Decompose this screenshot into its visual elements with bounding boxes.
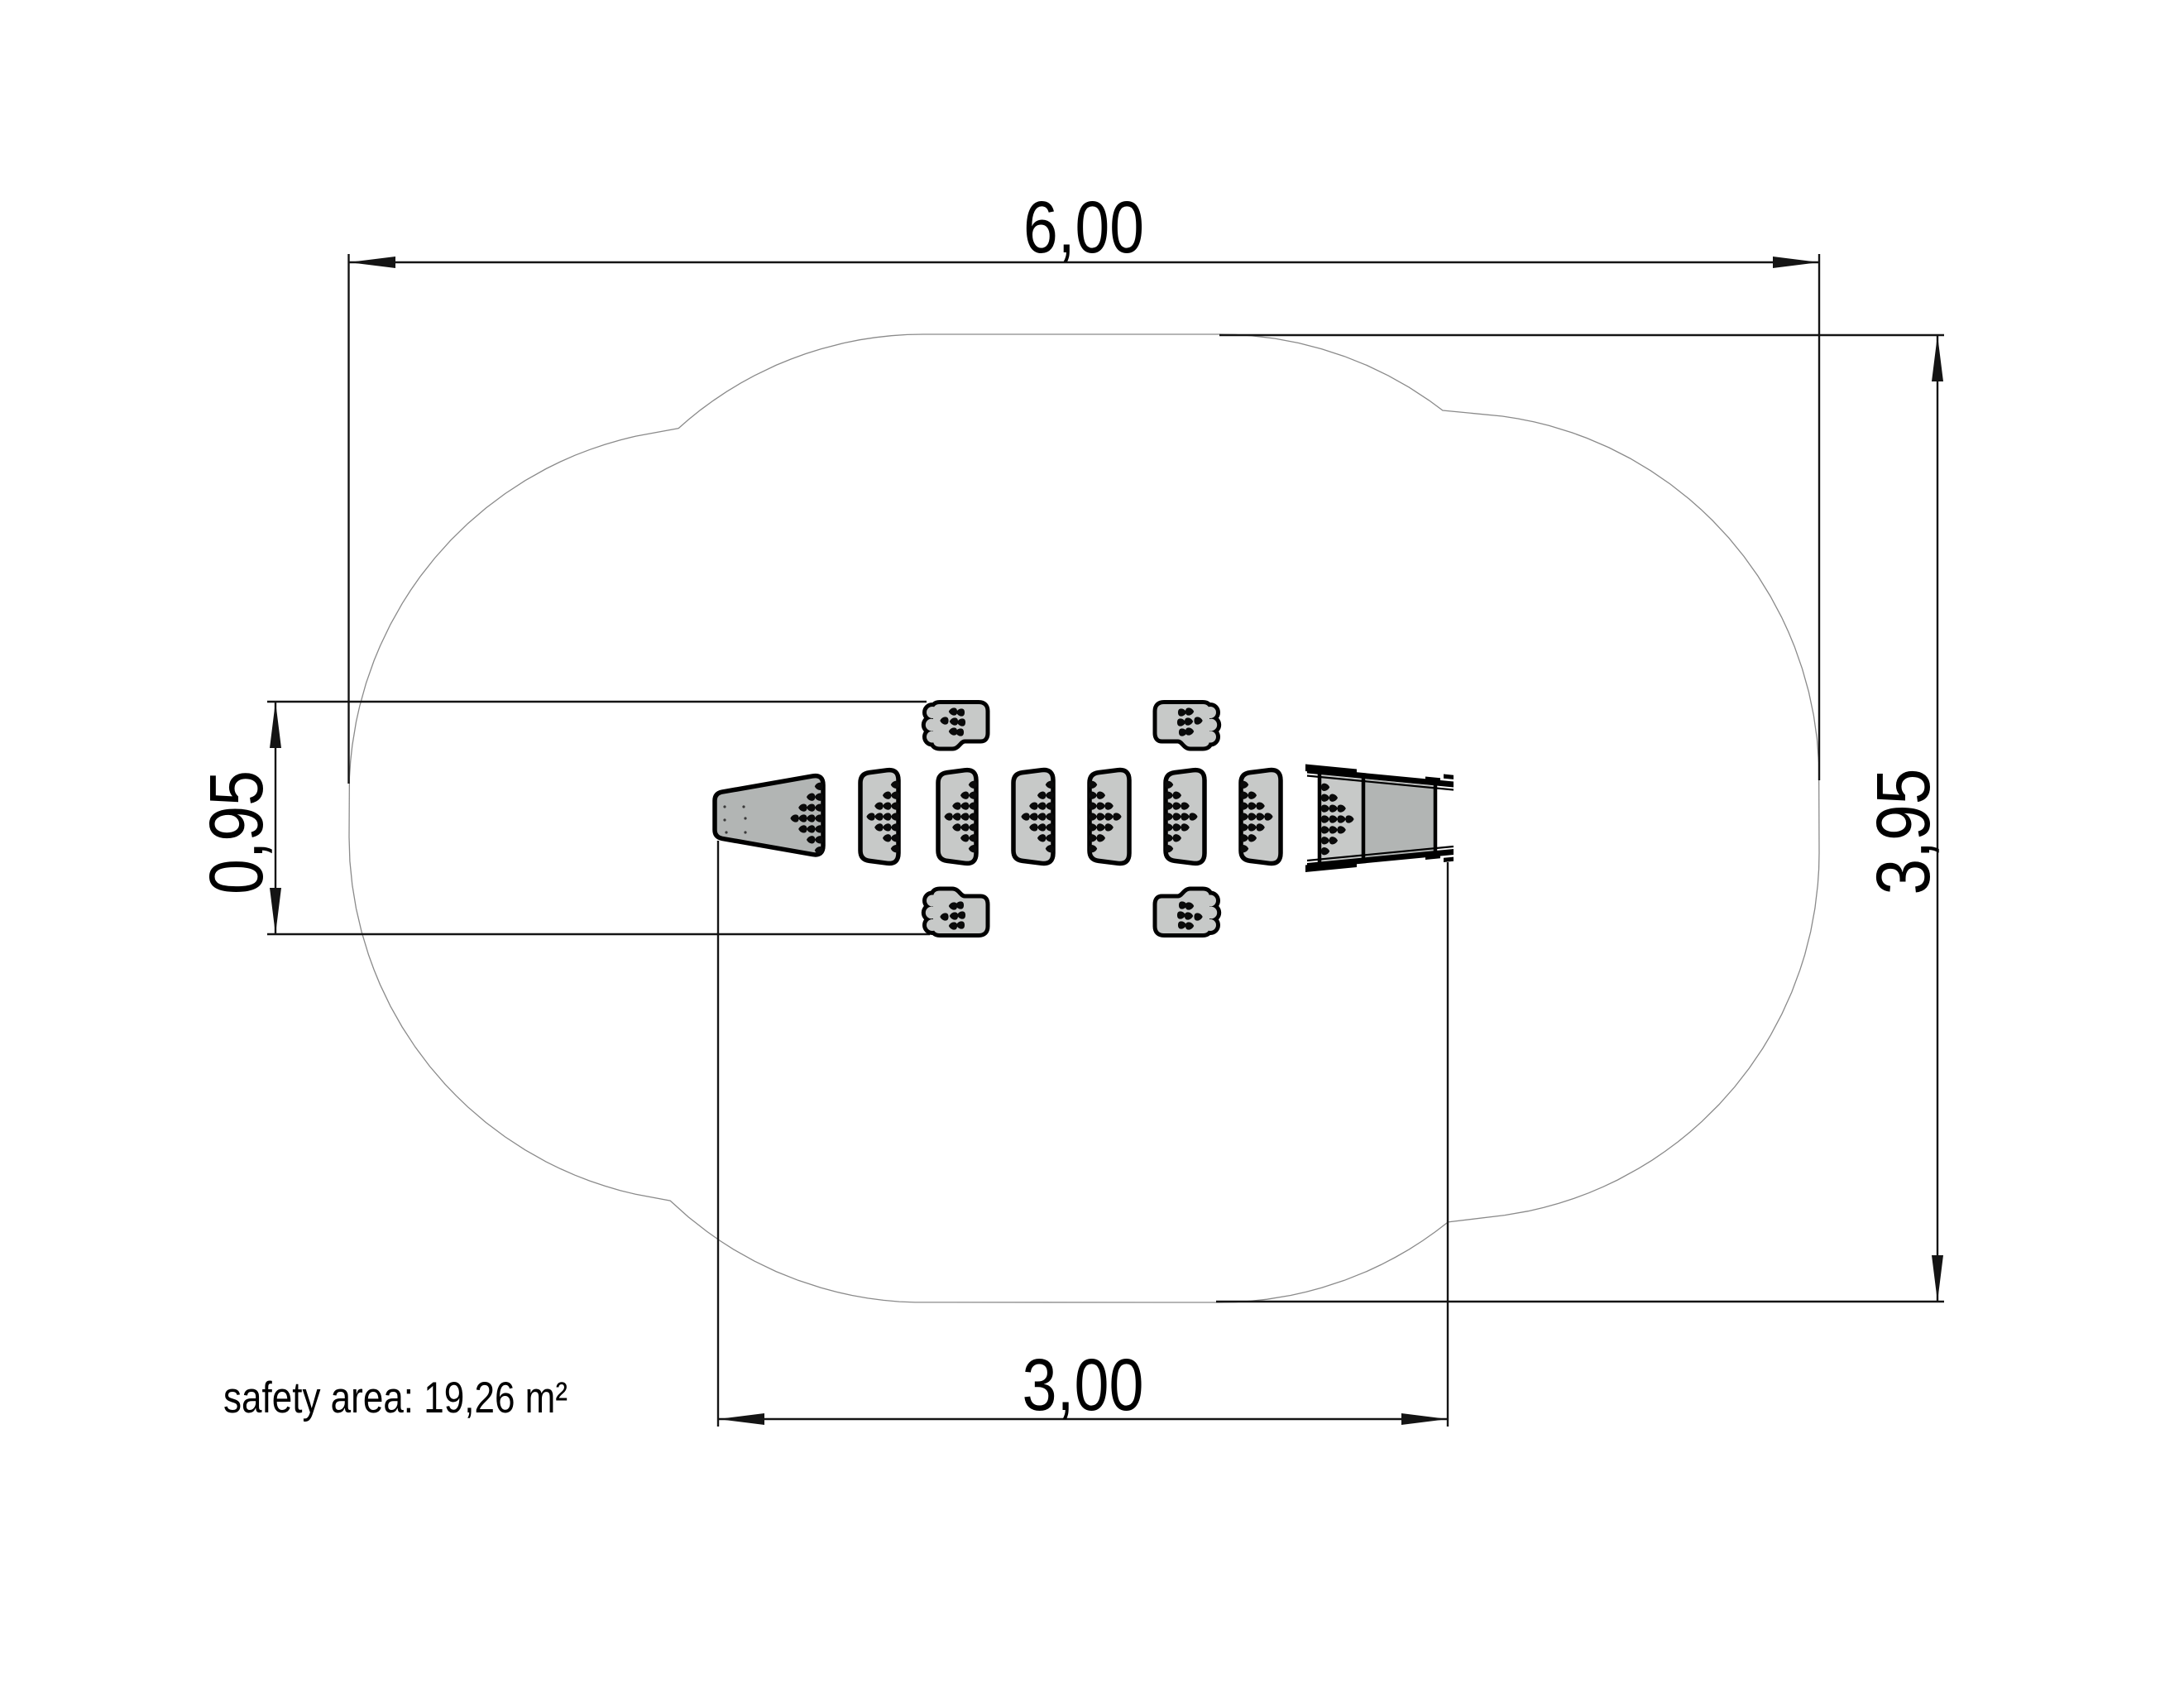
svg-text:3,95: 3,95 [1861,769,1946,895]
svg-text:6,00: 6,00 [1023,185,1144,268]
svg-text:0,95: 0,95 [194,770,279,894]
svg-text:3,00: 3,00 [1023,1343,1144,1426]
svg-text:safety area: 19,26 m²: safety area: 19,26 m² [223,1374,568,1422]
